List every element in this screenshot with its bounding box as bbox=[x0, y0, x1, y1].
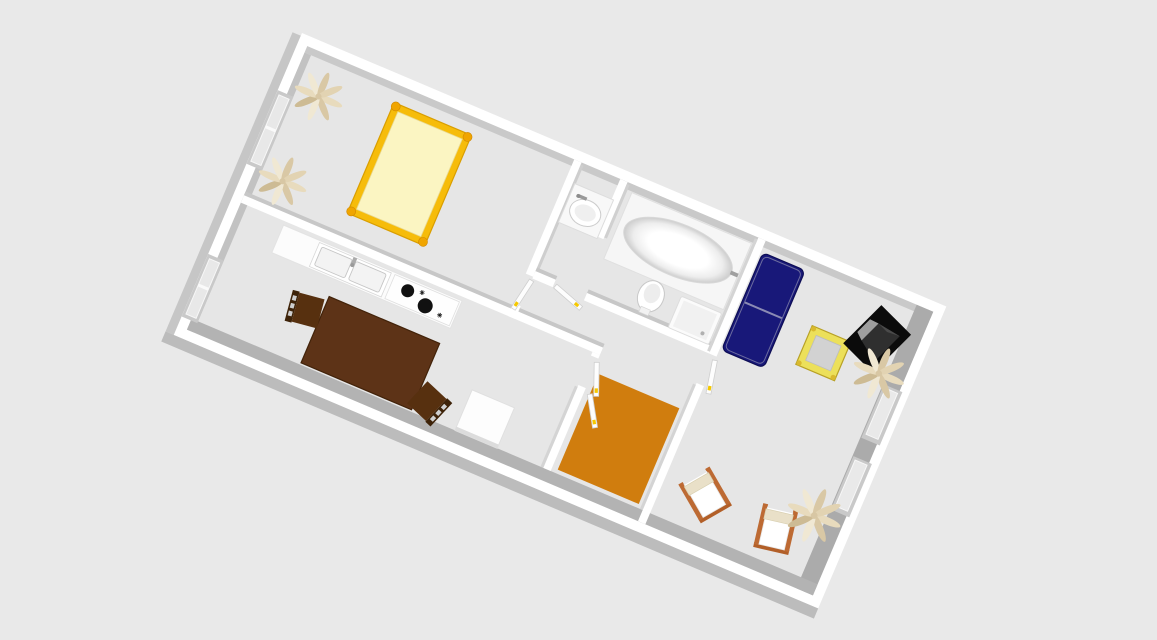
kitchen-door[interactable] bbox=[594, 362, 600, 396]
floor-plan-3d-view bbox=[0, 0, 1157, 640]
